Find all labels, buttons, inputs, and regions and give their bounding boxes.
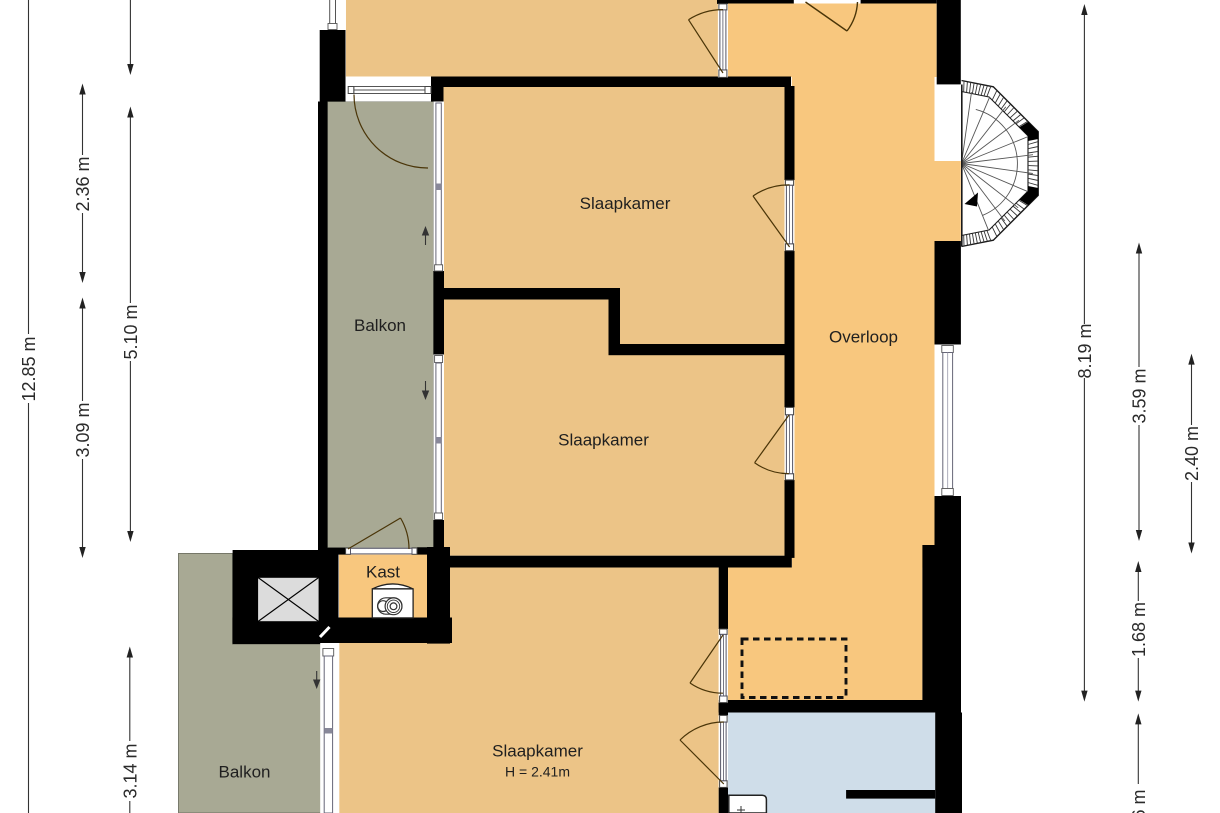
svg-text:1.68 m: 1.68 m	[1129, 602, 1149, 657]
svg-text:Slaapkamer: Slaapkamer	[558, 431, 649, 450]
svg-text:3.59 m: 3.59 m	[1130, 368, 1150, 423]
svg-text:3.14 m: 3.14 m	[120, 743, 140, 798]
svg-text:Slaapkamer: Slaapkamer	[580, 194, 671, 213]
svg-text:Balkon: Balkon	[219, 763, 271, 782]
svg-text:Kast: Kast	[366, 563, 400, 582]
svg-text:2.46 m: 2.46 m	[1129, 789, 1149, 813]
svg-text:8.19 m: 8.19 m	[1075, 323, 1095, 378]
svg-text:Slaapkamer: Slaapkamer	[492, 742, 583, 761]
svg-text:5.10 m: 5.10 m	[121, 304, 141, 359]
svg-text:Balkon: Balkon	[354, 316, 406, 335]
svg-text:2.36 m: 2.36 m	[73, 156, 93, 211]
svg-text:Overloop: Overloop	[829, 328, 898, 347]
svg-text:12.85 m: 12.85 m	[19, 336, 39, 401]
svg-text:2.40 m: 2.40 m	[1182, 426, 1202, 481]
svg-text:3.09 m: 3.09 m	[73, 402, 93, 457]
svg-text:H = 2.41m: H = 2.41m	[505, 764, 570, 780]
